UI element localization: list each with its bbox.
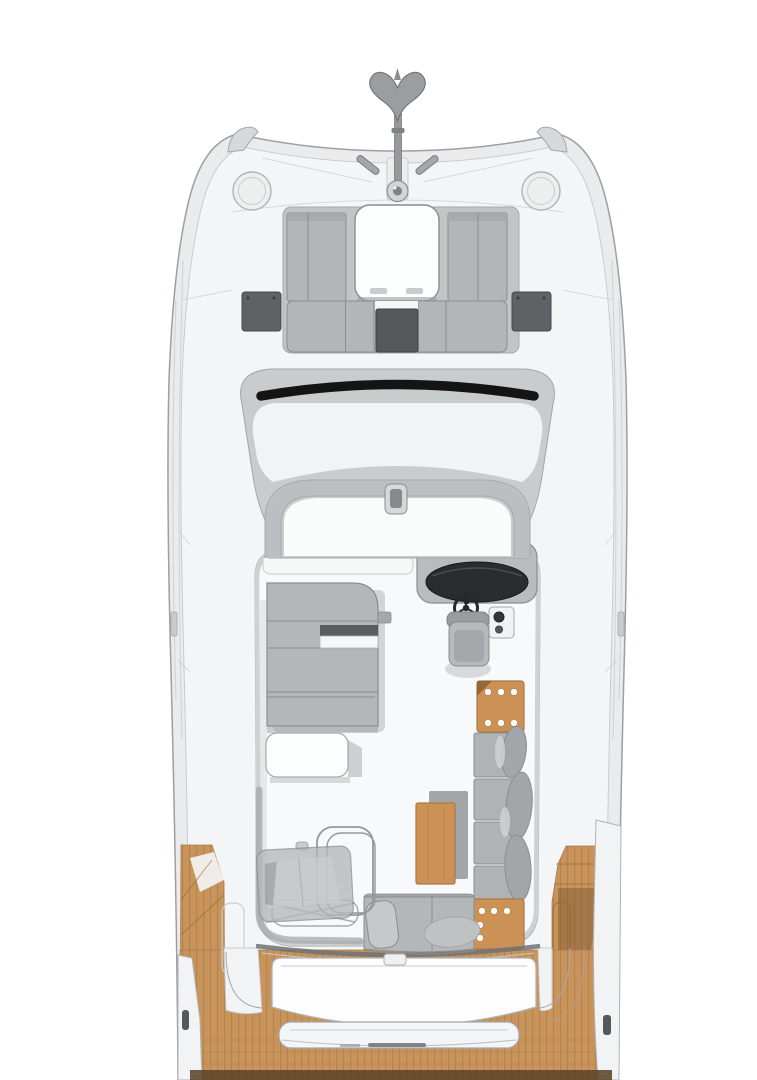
swim-platform xyxy=(279,1022,519,1048)
windlass xyxy=(387,181,408,202)
bow-table xyxy=(355,205,439,303)
galley-handle xyxy=(378,612,391,623)
aft-sofa xyxy=(364,894,481,954)
deck-corner-starboard xyxy=(538,948,552,1011)
galley-stove xyxy=(320,625,378,636)
pillow xyxy=(364,899,400,949)
galley-cabinets xyxy=(267,583,378,726)
rail-handle-port xyxy=(182,1010,189,1030)
stern-rub-strip xyxy=(190,1070,612,1080)
backrest-left xyxy=(287,213,346,301)
step-pad xyxy=(376,309,418,352)
coffee-table xyxy=(416,791,468,884)
deck-hatch-left xyxy=(233,172,271,210)
yacht-deck-plan xyxy=(0,0,757,1080)
transom-latch xyxy=(384,954,406,965)
side-pad-left xyxy=(242,292,281,331)
throttle-panel xyxy=(489,607,514,638)
backrest-right xyxy=(448,213,507,301)
yacht-deck-plan-page xyxy=(0,0,757,1080)
transom-locker xyxy=(272,958,536,1026)
galley-sink xyxy=(320,636,378,648)
deck-hatch-right xyxy=(522,172,560,210)
helm-seat xyxy=(447,612,489,666)
stacked-chair xyxy=(256,846,354,923)
hardtop xyxy=(241,369,555,558)
hull-rail-starboard-aft xyxy=(594,820,622,1080)
bow-lounge xyxy=(242,205,551,353)
throttle-knob xyxy=(494,612,504,622)
transom xyxy=(272,954,536,1048)
side-pad-right xyxy=(512,292,551,331)
arch-vent xyxy=(385,484,407,514)
dinette-table xyxy=(477,681,524,732)
trim-knob xyxy=(495,626,502,633)
rail-handle-starboard xyxy=(603,1015,611,1035)
bow-bench xyxy=(287,301,507,352)
galley-counter xyxy=(266,733,348,777)
side-sofa xyxy=(474,725,535,904)
